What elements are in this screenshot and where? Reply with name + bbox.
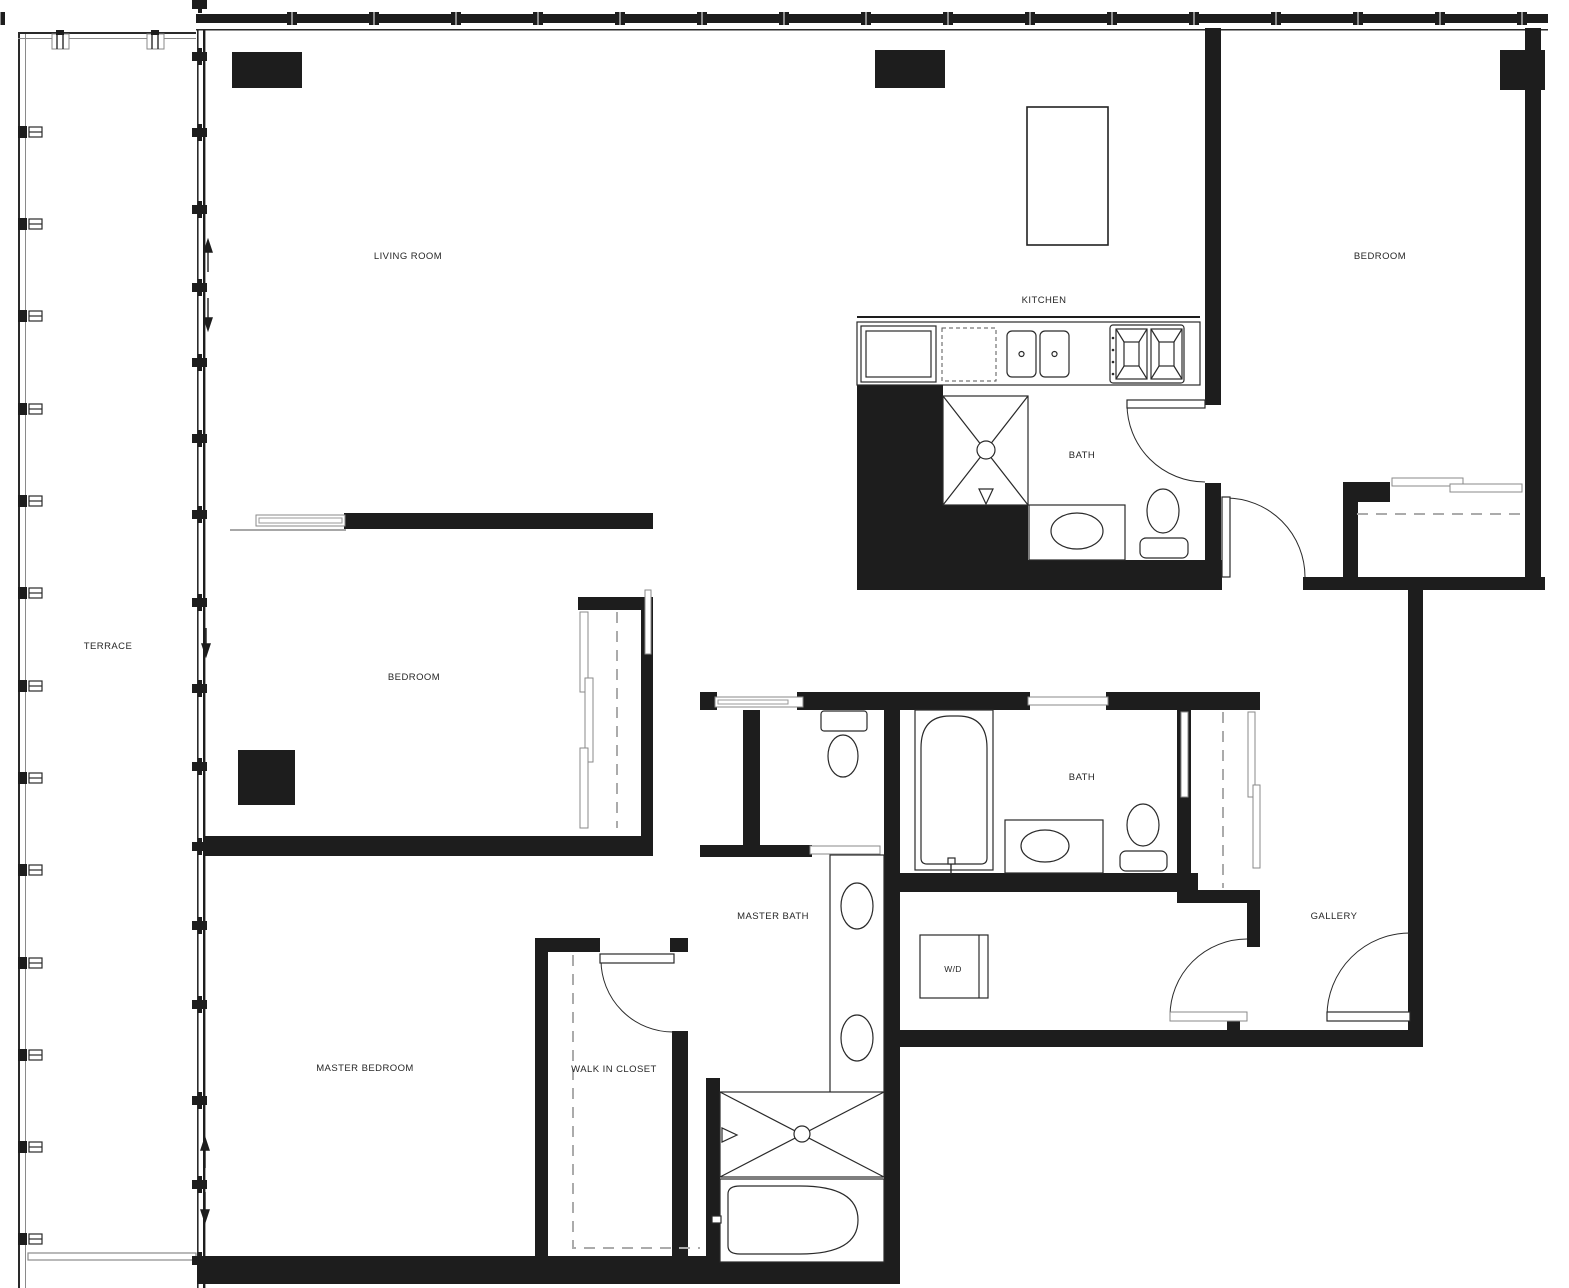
sliding-door-icon [1253,785,1260,868]
sliding-glass-wall [192,0,212,1288]
swing-door-icon [1127,400,1205,482]
column-icon [238,750,295,805]
double-vanity-icon [830,855,884,1093]
pocket-door-icon [810,846,880,854]
kitchen-island-icon [1027,107,1108,245]
room-label-living-room: LIVING ROOM [374,251,442,262]
swing-door-icon [600,954,674,963]
vanity-sink-icon [1029,505,1125,560]
room-label-master-bath: MASTER BATH [737,911,809,922]
swing-door-icon [1327,1012,1410,1021]
bathtub-icon [712,1179,884,1262]
sliding-door-icon [1248,712,1255,797]
room-label-master-bedroom: MASTER BEDROOM [316,1063,414,1074]
pocket-door-icon [715,697,803,707]
bathtub-icon [915,710,993,874]
refrigerator-icon [861,326,936,382]
toilet-icon [1120,804,1167,871]
room-label-gallery: GALLERY [1311,911,1358,922]
pocket-door-icon [1181,712,1188,797]
direction-arrow-icon [201,240,212,1222]
room-label-terrace: TERRACE [84,641,133,652]
terrace-structure [18,30,196,1288]
pocket-door-icon [1028,697,1108,705]
sliding-door-icon [1450,484,1522,492]
bedroom-tr-door [1222,497,1305,577]
sliding-door-icon [580,748,588,828]
pocket-door-icon [230,515,346,530]
room-label-bath-upper: BATH [1069,450,1095,461]
kitchen-fixtures [857,107,1200,385]
toilet-icon [1140,489,1188,558]
top-window-wall [0,12,1548,31]
room-label-laundry: W/D [944,964,961,974]
room-label-kitchen: KITCHEN [1022,295,1067,306]
master-shower [712,1092,884,1262]
entry-doors [1170,933,1410,1021]
floor-plan: TERRACE LIVING ROOM KITCHEN BEDROOM BATH… [0,0,1569,1288]
room-label-bath-lower: BATH [1069,772,1095,783]
shower-icon [943,396,1028,505]
room-label-walk-in-closet: WALK IN CLOSET [571,1064,657,1075]
lower-bath-fixtures [915,697,1188,874]
swing-door-icon [1222,497,1230,577]
master-bath-fixtures [715,697,884,1093]
swing-door-icon [1170,1012,1247,1021]
closet-sliding-doors [580,590,651,828]
room-label-bedroom-tr: BEDROOM [1354,251,1406,262]
vanity-sink-icon [1005,820,1103,873]
cooktop-icon [1110,325,1184,383]
column-icon [232,52,302,88]
window-mullion-icon [18,126,42,1245]
gallery-closet [1223,712,1260,888]
column-icon [875,50,945,88]
shower-icon [720,1092,884,1177]
toilet-icon [821,711,867,777]
room-label-bedroom-middle: BEDROOM [388,672,440,683]
